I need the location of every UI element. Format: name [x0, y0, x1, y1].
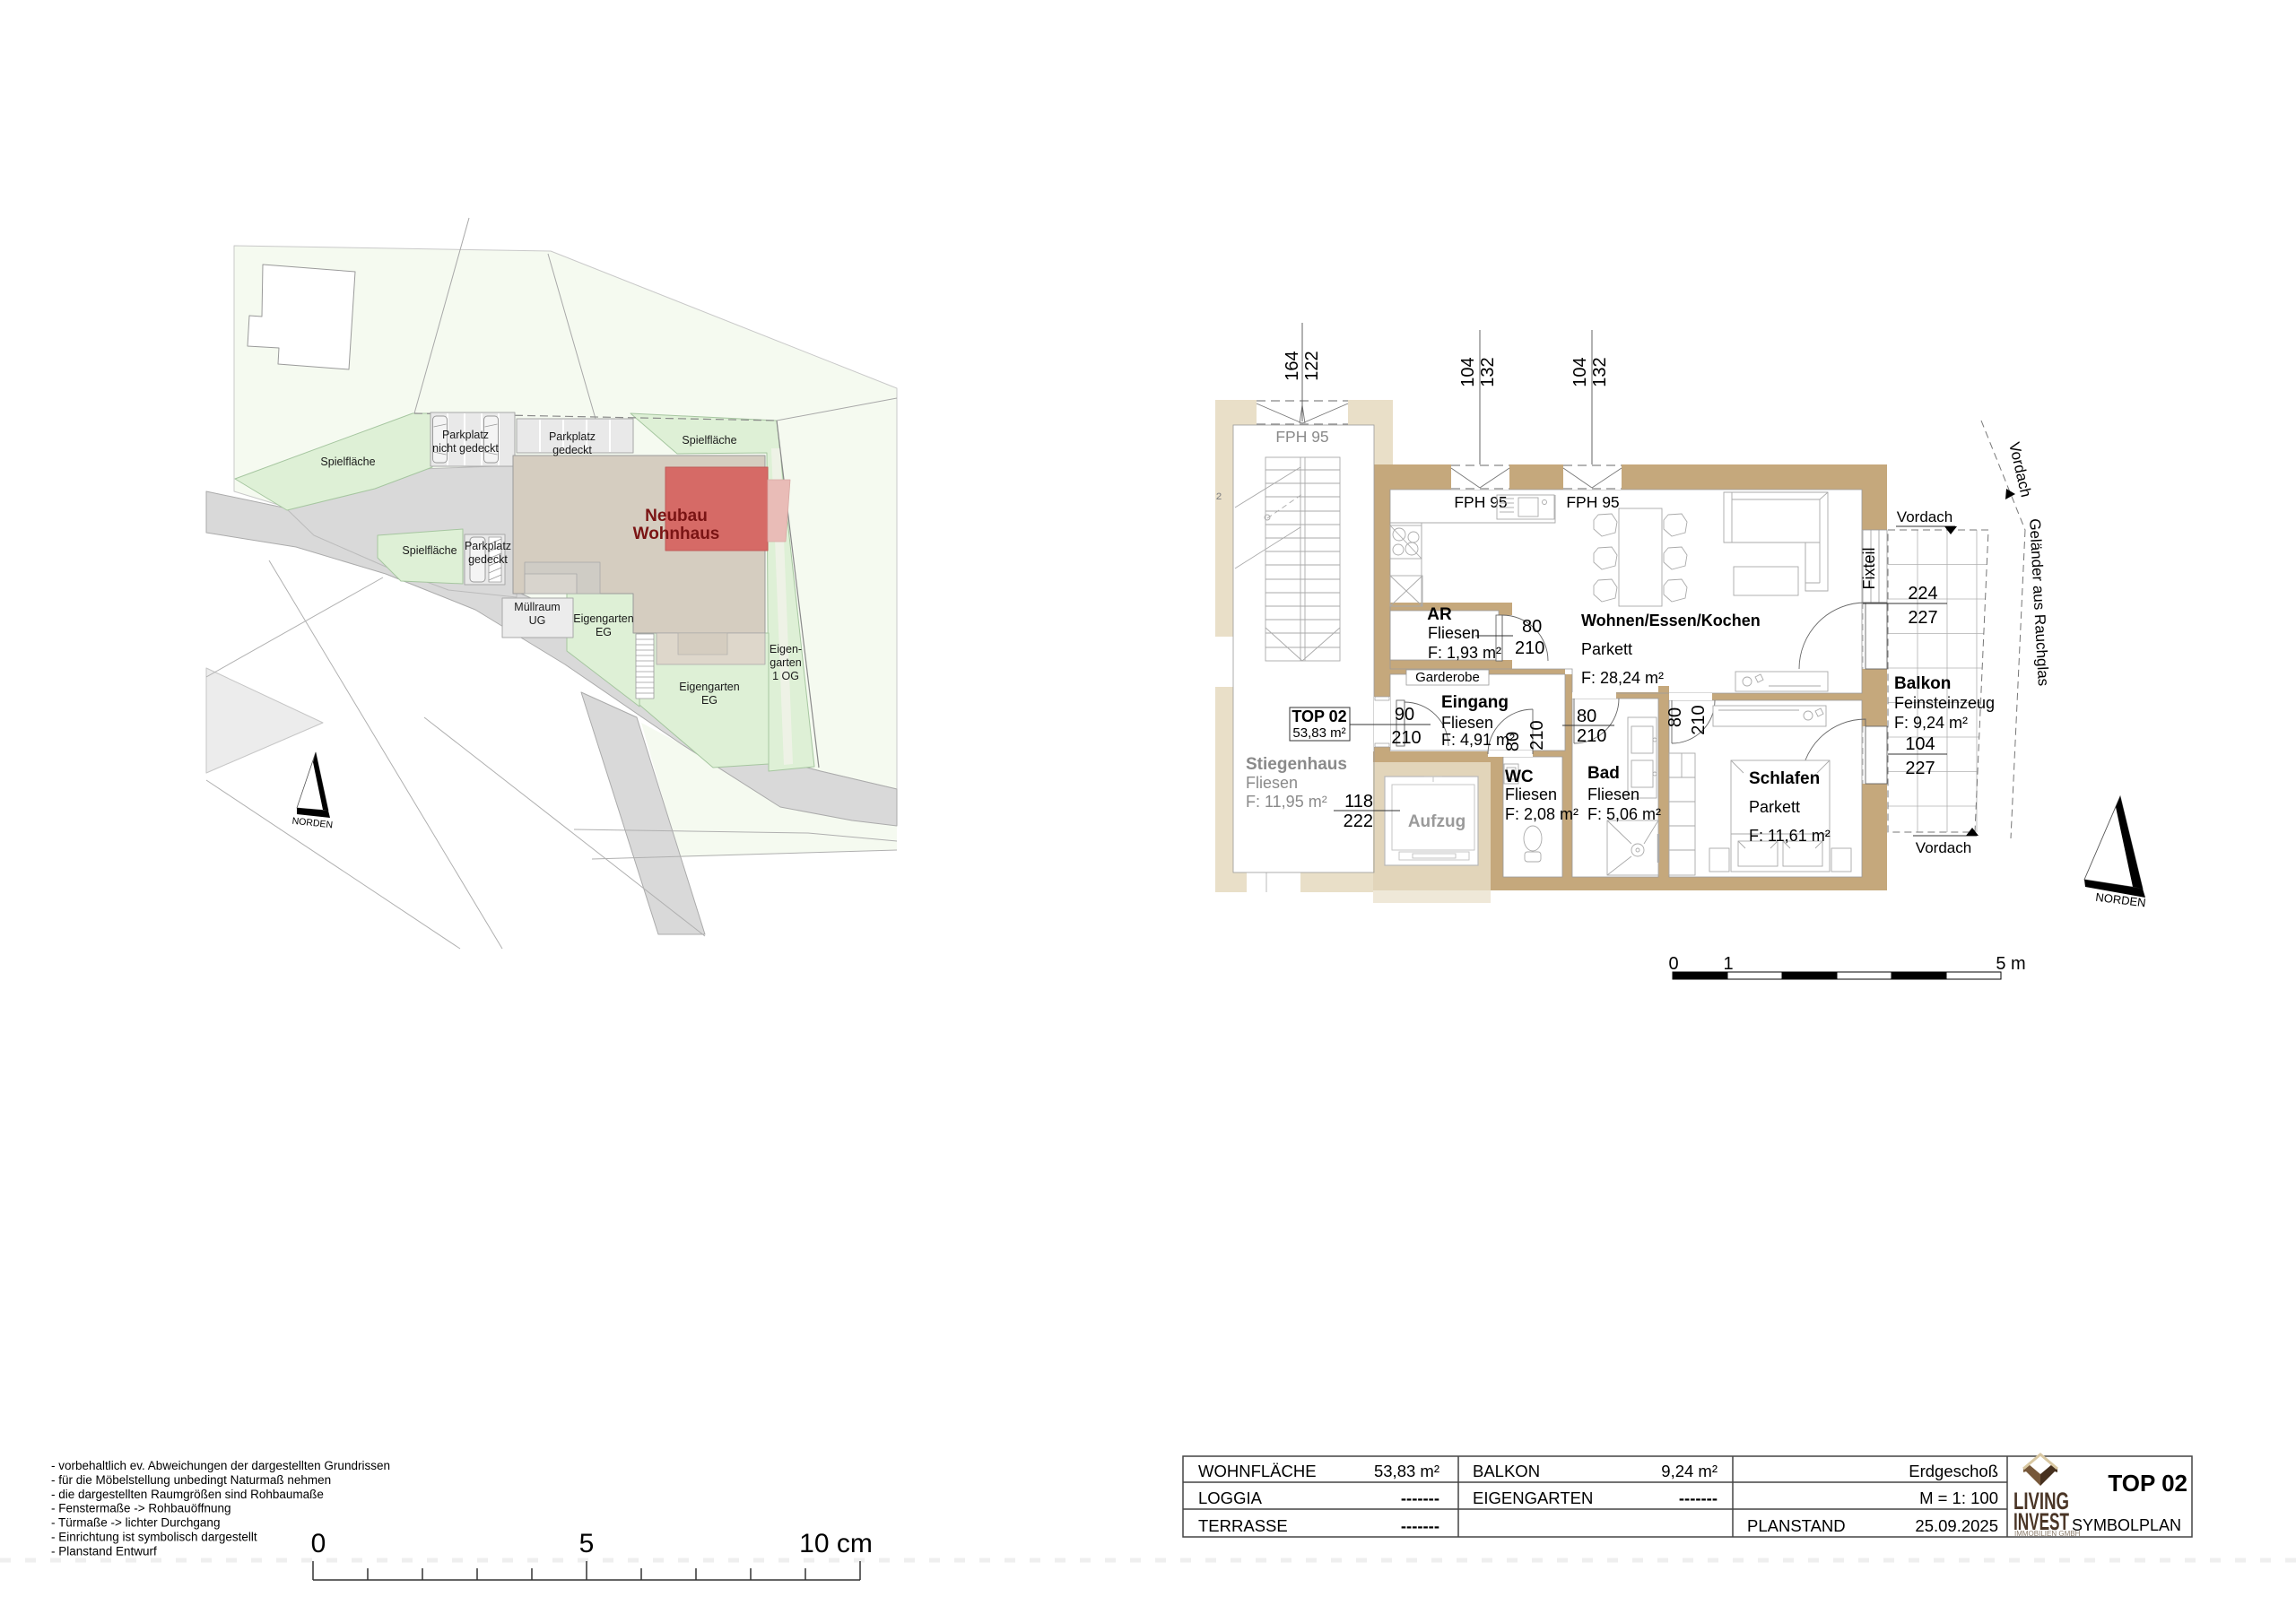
svg-text:Fliesen: Fliesen: [1505, 785, 1557, 803]
svg-text:TOP 02: TOP 02: [2108, 1470, 2187, 1497]
svg-text:- Fenstermaße -> Rohbauöffnung: - Fenstermaße -> Rohbauöffnung: [51, 1502, 231, 1515]
svg-text:Eigen-: Eigen-: [770, 643, 802, 655]
svg-text:227: 227: [1908, 608, 1937, 628]
svg-text:210: 210: [1515, 638, 1544, 658]
svg-text:F: 4,91 m²: F: 4,91 m²: [1441, 731, 1515, 749]
svg-text:210: 210: [1577, 726, 1606, 746]
svg-text:Parkplatz: Parkplatz: [549, 430, 596, 443]
svg-text:118: 118: [1344, 792, 1373, 811]
svg-text:Parkett: Parkett: [1581, 640, 1632, 658]
svg-text:Parkplatz: Parkplatz: [465, 540, 511, 552]
svg-text:164: 164: [1283, 351, 1302, 380]
svg-text:F: 1,93 m²: F: 1,93 m²: [1428, 644, 1501, 662]
svg-text:WOHNFLÄCHE: WOHNFLÄCHE: [1198, 1462, 1317, 1480]
svg-text:F: 5,06 m²: F: 5,06 m²: [1587, 805, 1661, 823]
svg-text:gedeckt: gedeckt: [552, 444, 592, 456]
svg-text:FPH 95: FPH 95: [1566, 493, 1619, 511]
svg-text:Spielfläche: Spielfläche: [320, 456, 375, 468]
svg-text:80: 80: [1577, 707, 1596, 726]
svg-text:104: 104: [1905, 734, 1935, 754]
svg-text:Feinsteinzeug: Feinsteinzeug: [1894, 694, 1995, 712]
svg-text:Parkett: Parkett: [1749, 798, 1800, 816]
svg-text:- Einrichtung ist symbolisch d: - Einrichtung ist symbolisch dargestellt: [51, 1531, 257, 1544]
svg-text:Müllraum: Müllraum: [514, 601, 560, 613]
svg-text:Fliesen: Fliesen: [1441, 714, 1493, 732]
svg-text:Aufzug: Aufzug: [1408, 812, 1465, 831]
svg-text:F: 11,61 m²: F: 11,61 m²: [1749, 827, 1831, 845]
svg-text:LOGGIA: LOGGIA: [1198, 1488, 1263, 1507]
svg-text:5: 5: [579, 1529, 595, 1558]
svg-text:0: 0: [1668, 954, 1678, 974]
svg-text:210: 210: [1689, 705, 1709, 734]
svg-text:132: 132: [1590, 357, 1610, 386]
svg-text:- Planstand Entwurf: - Planstand Entwurf: [51, 1544, 157, 1558]
svg-text:Neubau: Neubau: [645, 507, 708, 525]
svg-text:SYMBOLPLAN: SYMBOLPLAN: [2072, 1516, 2181, 1534]
svg-text:Vordach: Vordach: [1897, 508, 1952, 525]
svg-text:5 m: 5 m: [1996, 954, 2025, 974]
svg-text:Garderobe: Garderobe: [1415, 670, 1480, 685]
svg-text:Wohnhaus: Wohnhaus: [633, 525, 720, 543]
svg-text:80: 80: [1522, 617, 1542, 637]
svg-text:25.09.2025: 25.09.2025: [1915, 1516, 1998, 1535]
svg-text:FPH 95: FPH 95: [1454, 493, 1507, 511]
svg-text:122: 122: [1302, 351, 1322, 380]
svg-text:210: 210: [1527, 720, 1547, 750]
svg-text:F: 11,95 m²: F: 11,95 m²: [1246, 793, 1327, 811]
svg-text:EG: EG: [596, 626, 612, 638]
svg-text:10 cm: 10 cm: [799, 1529, 873, 1558]
svg-text:Fixteil: Fixteil: [1860, 547, 1878, 589]
svg-text:Fliesen: Fliesen: [1246, 774, 1298, 792]
svg-text:9,24 m²: 9,24 m²: [1661, 1462, 1718, 1480]
svg-text:nicht gedeckt: nicht gedeckt: [432, 442, 499, 455]
svg-text:Fliesen: Fliesen: [1428, 624, 1480, 642]
svg-text:104: 104: [1570, 357, 1590, 386]
svg-text:Fliesen: Fliesen: [1587, 785, 1639, 803]
svg-text:1: 1: [1723, 954, 1733, 974]
svg-text:Parkplatz: Parkplatz: [442, 429, 489, 441]
svg-text:- vorbehaltlich ev. Abweichung: - vorbehaltlich ev. Abweichungen der dar…: [51, 1459, 390, 1472]
svg-text:F: 2,08 m²: F: 2,08 m²: [1505, 805, 1578, 823]
svg-text:UG: UG: [529, 614, 546, 627]
svg-text:gedeckt: gedeckt: [468, 553, 508, 566]
svg-text:²: ²: [1216, 490, 1222, 508]
svg-text:1 OG: 1 OG: [772, 670, 799, 682]
svg-text:-------: -------: [1679, 1488, 1718, 1507]
svg-text:EIGENGARTEN: EIGENGARTEN: [1473, 1488, 1593, 1507]
svg-text:0: 0: [311, 1529, 326, 1558]
svg-text:Erdgeschoß: Erdgeschoß: [1909, 1462, 1998, 1480]
svg-text:224: 224: [1908, 584, 1937, 603]
svg-text:90: 90: [1395, 705, 1414, 725]
svg-text:Stiegenhaus: Stiegenhaus: [1246, 755, 1347, 774]
svg-text:IMMOBILIEN GMBH: IMMOBILIEN GMBH: [2014, 1530, 2081, 1538]
svg-text:M = 1: 100: M = 1: 100: [1919, 1488, 1998, 1507]
svg-text:PLANSTAND: PLANSTAND: [1747, 1516, 1846, 1535]
svg-text:EG: EG: [701, 694, 717, 707]
svg-text:- Türmaße -> lichter Durchgang: - Türmaße -> lichter Durchgang: [51, 1516, 220, 1530]
svg-text:TERRASSE: TERRASSE: [1198, 1516, 1288, 1535]
svg-text:garten: garten: [770, 656, 801, 669]
svg-text:Schlafen: Schlafen: [1749, 769, 1820, 788]
svg-text:Eigengarten: Eigengarten: [573, 612, 633, 625]
svg-text:TOP 02: TOP 02: [1291, 707, 1346, 725]
svg-text:Eingang: Eingang: [1441, 693, 1509, 712]
svg-text:Bad: Bad: [1587, 764, 1620, 783]
svg-text:Balkon: Balkon: [1894, 674, 1951, 693]
svg-text:104: 104: [1458, 357, 1478, 386]
svg-text:F: 9,24 m²: F: 9,24 m²: [1894, 714, 1968, 732]
svg-text:Vordach: Vordach: [1916, 839, 1971, 856]
svg-text:- die dargestellten Raumgrößen: - die dargestellten Raumgrößen sind Rohb…: [51, 1488, 324, 1501]
svg-text:WC: WC: [1505, 768, 1534, 786]
svg-text:- für die Möbelstellung unbedi: - für die Möbelstellung unbedingt Naturm…: [51, 1473, 331, 1487]
svg-text:Spielfläche: Spielfläche: [682, 434, 736, 447]
svg-text:-------: -------: [1401, 1488, 1439, 1507]
svg-text:BALKON: BALKON: [1473, 1462, 1540, 1480]
svg-text:222: 222: [1344, 811, 1373, 831]
svg-text:53,83 m²: 53,83 m²: [1374, 1462, 1439, 1480]
svg-text:Eigengarten: Eigengarten: [679, 681, 739, 693]
svg-text:210: 210: [1391, 728, 1421, 748]
svg-text:FPH 95: FPH 95: [1275, 428, 1328, 446]
svg-text:Spielfläche: Spielfläche: [402, 544, 457, 557]
svg-text:AR: AR: [1427, 605, 1452, 624]
svg-text:-------: -------: [1401, 1516, 1439, 1535]
svg-text:F: 28,24 m²: F: 28,24 m²: [1581, 669, 1664, 687]
svg-text:53,83 m²: 53,83 m²: [1292, 725, 1345, 741]
svg-text:132: 132: [1478, 357, 1498, 386]
svg-text:80: 80: [1665, 707, 1685, 727]
svg-text:227: 227: [1905, 759, 1935, 778]
svg-text:Wohnen/Essen/Kochen: Wohnen/Essen/Kochen: [1581, 612, 1761, 629]
